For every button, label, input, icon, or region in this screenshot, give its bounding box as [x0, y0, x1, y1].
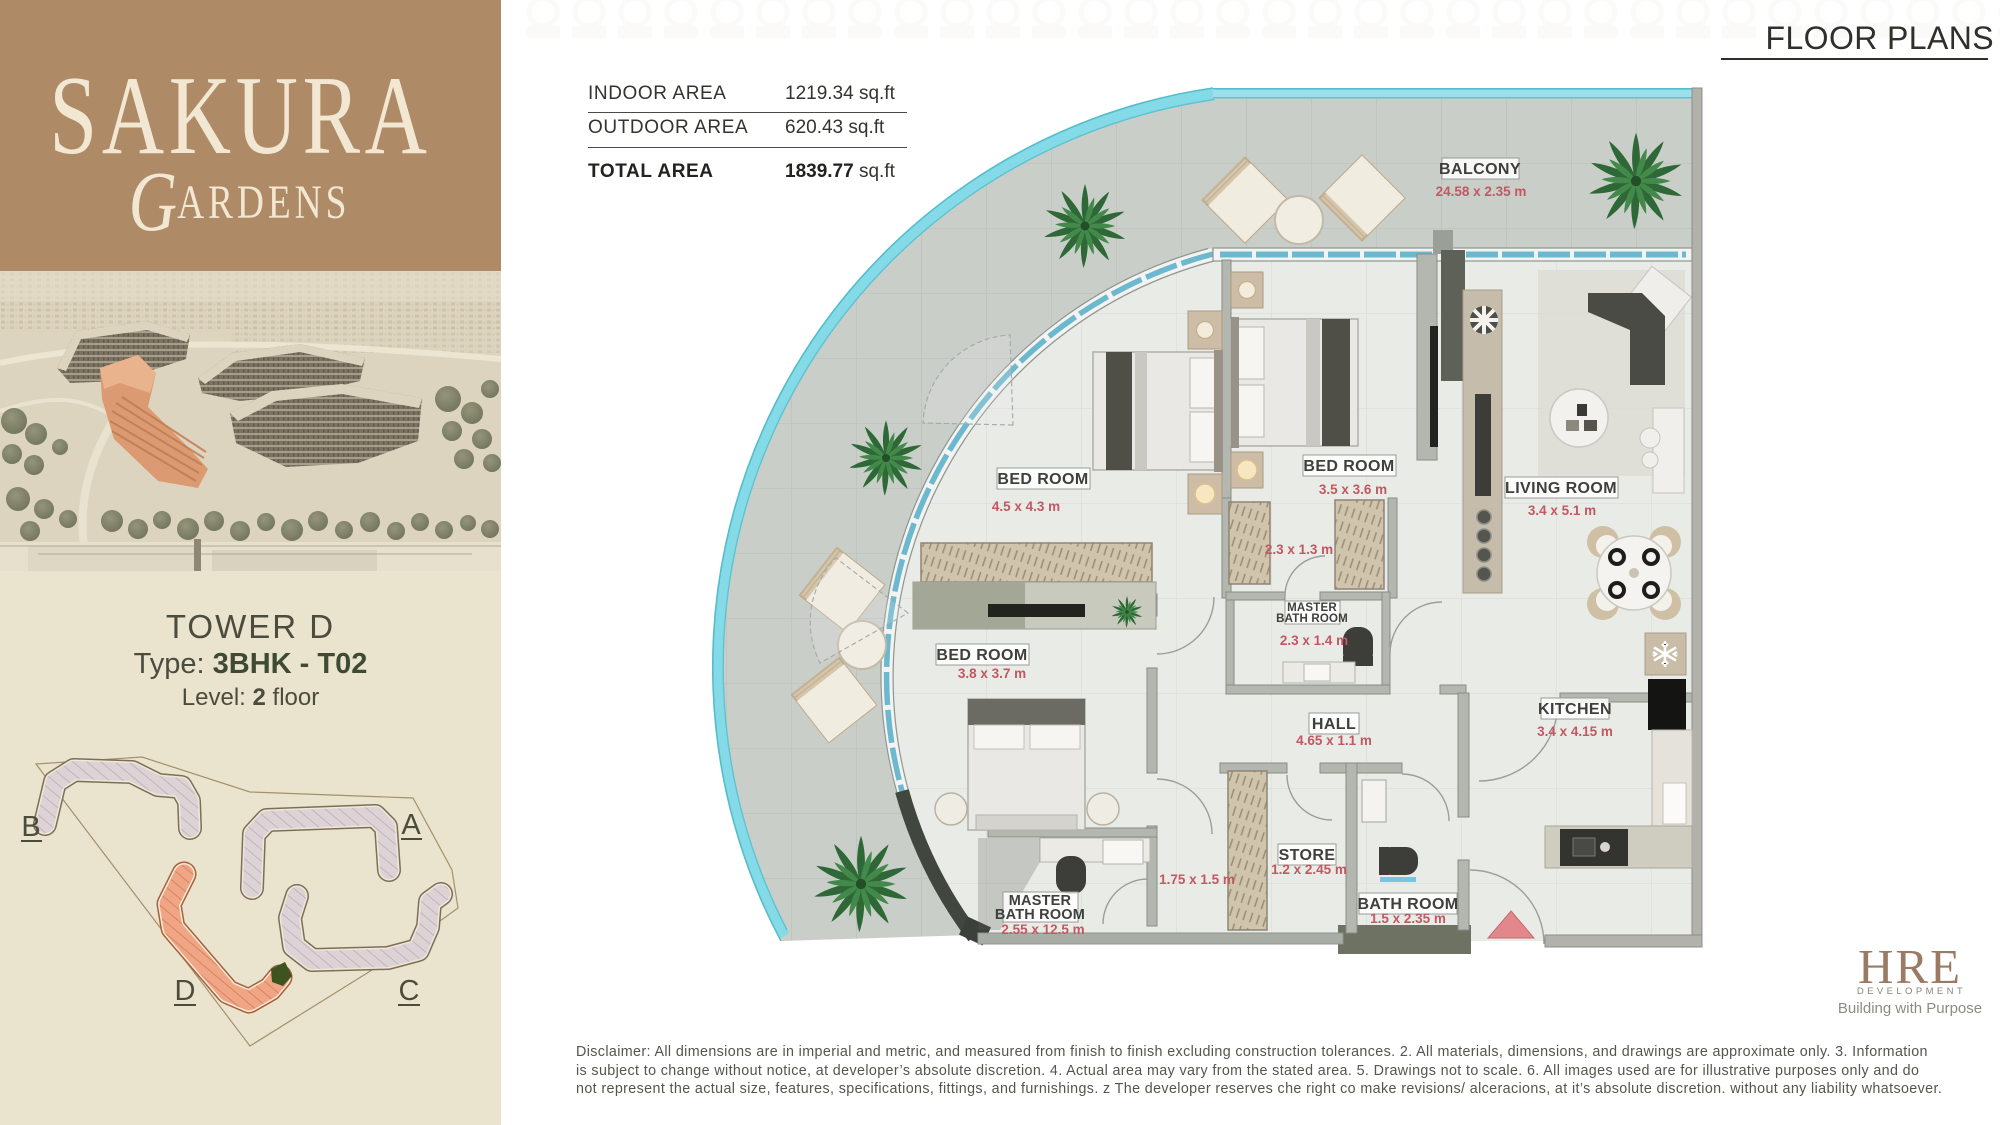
svg-text:2.3 x 1.4 m: 2.3 x 1.4 m: [1280, 633, 1348, 648]
svg-text:24.58 x 2.35 m: 24.58 x 2.35 m: [1436, 184, 1527, 199]
svg-text:1.75 x 1.5 m: 1.75 x 1.5 m: [1159, 872, 1235, 887]
svg-text:3.8 x 3.7 m: 3.8 x 3.7 m: [958, 666, 1026, 681]
svg-text:BED ROOM: BED ROOM: [1303, 458, 1394, 475]
svg-text:4.5 x 4.3 m: 4.5 x 4.3 m: [992, 499, 1060, 514]
svg-text:KITCHEN: KITCHEN: [1538, 701, 1612, 718]
svg-text:BALCONY: BALCONY: [1439, 161, 1521, 178]
svg-text:2.3 x 1.3 m: 2.3 x 1.3 m: [1265, 542, 1333, 557]
svg-text:BATH ROOM: BATH ROOM: [995, 907, 1085, 923]
svg-text:HALL: HALL: [1312, 716, 1356, 733]
svg-text:3.5 x 3.6 m: 3.5 x 3.6 m: [1319, 482, 1387, 497]
svg-text:4.65 x 1.1 m: 4.65 x 1.1 m: [1296, 733, 1372, 748]
svg-text:BED ROOM: BED ROOM: [997, 471, 1088, 488]
svg-text:1.5 x 2.35 m: 1.5 x 2.35 m: [1370, 911, 1446, 926]
svg-text:3.4 x 4.15 m: 3.4 x 4.15 m: [1537, 724, 1613, 739]
svg-text:3.4 x 5.1 m: 3.4 x 5.1 m: [1528, 503, 1596, 518]
svg-text:LIVING ROOM: LIVING ROOM: [1505, 480, 1617, 497]
svg-text:2.55 x 12.5 m: 2.55 x 12.5 m: [1001, 922, 1084, 937]
svg-text:BATH ROOM: BATH ROOM: [1276, 613, 1348, 625]
svg-text:1.2 x 2.45 m: 1.2 x 2.45 m: [1271, 862, 1347, 877]
svg-text:BED ROOM: BED ROOM: [936, 647, 1027, 664]
